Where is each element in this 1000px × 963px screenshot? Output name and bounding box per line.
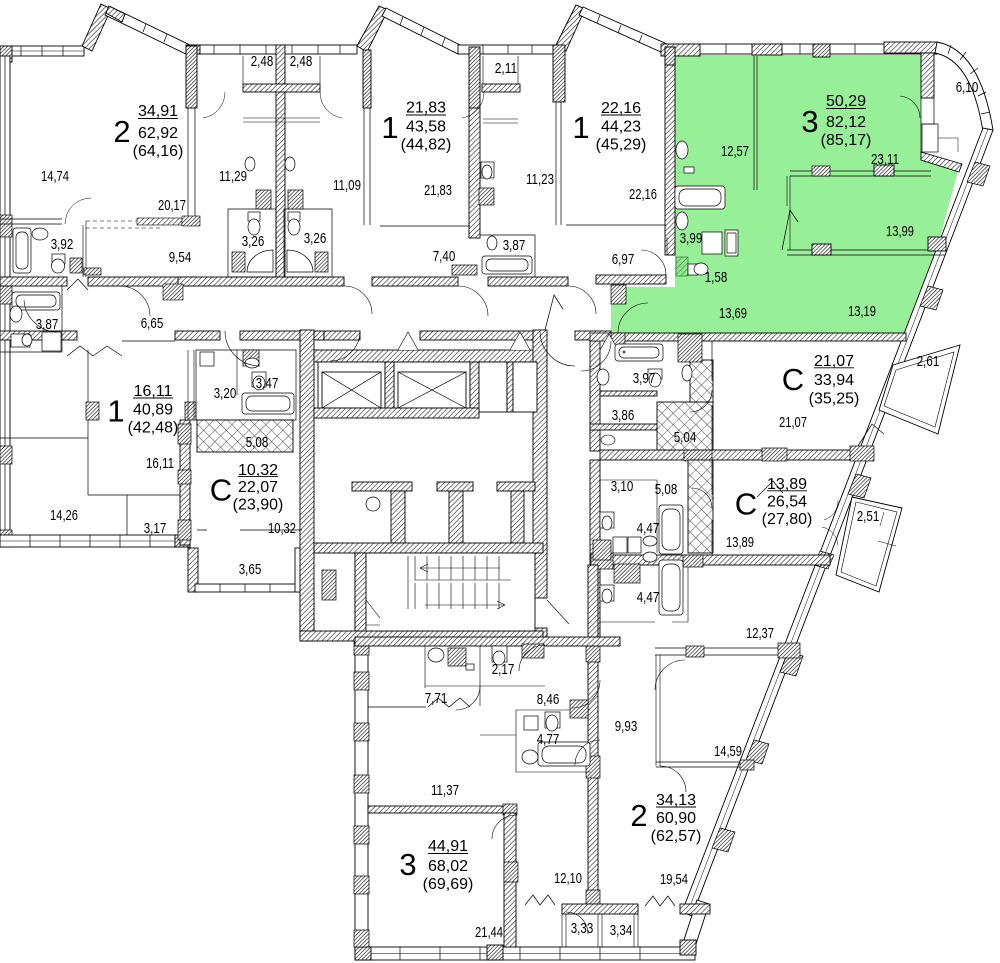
svg-text:1: 1 xyxy=(572,110,589,145)
svg-text:6,97: 6,97 xyxy=(612,251,635,268)
svg-text:62,92: 62,92 xyxy=(138,125,178,142)
svg-text:3,10: 3,10 xyxy=(611,478,634,495)
svg-text:5,04: 5,04 xyxy=(674,429,697,446)
svg-text:4,47: 4,47 xyxy=(637,589,660,606)
svg-text:3,17: 3,17 xyxy=(144,520,167,537)
svg-text:(62,57): (62,57) xyxy=(651,828,702,845)
svg-text:11,29: 11,29 xyxy=(219,168,247,185)
svg-text:1: 1 xyxy=(107,394,124,429)
svg-text:10,32: 10,32 xyxy=(268,520,296,537)
svg-text:2,51: 2,51 xyxy=(857,508,880,525)
svg-text:6,65: 6,65 xyxy=(141,315,164,332)
svg-text:C: C xyxy=(210,473,232,508)
svg-text:50,29: 50,29 xyxy=(826,93,866,110)
svg-text:5,08: 5,08 xyxy=(655,481,678,498)
svg-text:(69,69): (69,69) xyxy=(423,876,474,893)
svg-text:14,59: 14,59 xyxy=(714,743,742,760)
svg-text:26,54: 26,54 xyxy=(767,494,807,511)
svg-text:C: C xyxy=(782,362,804,397)
svg-text:40,89: 40,89 xyxy=(133,402,173,419)
svg-text:7,40: 7,40 xyxy=(433,248,456,265)
svg-text:4,47: 4,47 xyxy=(637,520,660,537)
svg-text:33,94: 33,94 xyxy=(814,372,854,389)
svg-text:13,99: 13,99 xyxy=(886,223,914,240)
svg-text:(27,80): (27,80) xyxy=(762,511,813,528)
svg-text:2: 2 xyxy=(630,798,647,833)
svg-text:13,69: 13,69 xyxy=(719,305,747,322)
svg-text:2,17: 2,17 xyxy=(492,661,515,678)
svg-text:20,17: 20,17 xyxy=(158,197,186,214)
svg-text:22,07: 22,07 xyxy=(238,479,278,496)
svg-text:21,07: 21,07 xyxy=(779,414,807,431)
svg-text:21,44: 21,44 xyxy=(475,924,503,941)
svg-text:13,19: 13,19 xyxy=(848,303,876,320)
svg-text:3: 3 xyxy=(399,847,416,882)
svg-text:3,65: 3,65 xyxy=(239,561,262,578)
svg-text:16,11: 16,11 xyxy=(146,455,174,472)
svg-text:9,54: 9,54 xyxy=(169,249,192,266)
svg-text:(64,16): (64,16) xyxy=(133,143,184,160)
svg-text:3,92: 3,92 xyxy=(51,236,74,253)
svg-text:5,08: 5,08 xyxy=(246,434,269,451)
svg-text:2,11: 2,11 xyxy=(495,60,518,77)
svg-text:16,11: 16,11 xyxy=(134,383,173,400)
svg-text:14,26: 14,26 xyxy=(50,507,78,524)
svg-text:82,12: 82,12 xyxy=(826,114,866,131)
svg-text:1,58: 1,58 xyxy=(705,269,728,286)
svg-text:21,83: 21,83 xyxy=(406,100,446,117)
svg-text:3,26: 3,26 xyxy=(242,233,265,250)
svg-text:23,11: 23,11 xyxy=(871,151,899,168)
svg-text:44,23: 44,23 xyxy=(601,119,641,136)
svg-text:(44,82): (44,82) xyxy=(401,137,452,154)
svg-text:3,86: 3,86 xyxy=(612,407,635,424)
svg-text:(42,48): (42,48) xyxy=(128,420,179,437)
svg-text:3,87: 3,87 xyxy=(36,316,59,333)
svg-text:68,02: 68,02 xyxy=(428,858,468,875)
svg-text:3,97: 3,97 xyxy=(633,370,656,387)
svg-text:7,71: 7,71 xyxy=(425,690,448,707)
svg-text:14,74: 14,74 xyxy=(41,168,69,185)
svg-text:11,37: 11,37 xyxy=(431,782,459,799)
svg-text:22,16: 22,16 xyxy=(629,186,657,203)
svg-text:3: 3 xyxy=(801,104,818,139)
svg-text:12,57: 12,57 xyxy=(721,143,749,160)
svg-text:3,34: 3,34 xyxy=(610,922,633,939)
svg-text:4,77: 4,77 xyxy=(537,731,560,748)
svg-text:43,58: 43,58 xyxy=(406,119,446,136)
svg-text:9,93: 9,93 xyxy=(615,718,638,735)
svg-text:(35,25): (35,25) xyxy=(809,391,860,408)
svg-text:34,91: 34,91 xyxy=(138,103,178,120)
svg-text:3,47: 3,47 xyxy=(256,375,279,392)
svg-text:8,46: 8,46 xyxy=(537,691,560,708)
svg-text:(45,29): (45,29) xyxy=(596,137,647,154)
svg-text:12,10: 12,10 xyxy=(554,870,582,887)
svg-text:2,48: 2,48 xyxy=(290,53,313,70)
svg-text:1: 1 xyxy=(381,110,398,145)
svg-text:22,16: 22,16 xyxy=(601,100,641,117)
svg-text:19,54: 19,54 xyxy=(660,871,688,888)
svg-text:11,09: 11,09 xyxy=(333,177,361,194)
svg-text:34,13: 34,13 xyxy=(656,792,696,809)
svg-text:2: 2 xyxy=(113,114,130,149)
svg-text:3,87: 3,87 xyxy=(503,237,526,254)
svg-text:21,83: 21,83 xyxy=(424,182,452,199)
svg-text:(85,17): (85,17) xyxy=(821,132,872,149)
svg-text:C: C xyxy=(735,487,757,522)
svg-text:13,89: 13,89 xyxy=(726,534,754,551)
svg-text:2,48: 2,48 xyxy=(251,53,274,70)
svg-text:(23,90): (23,90) xyxy=(233,497,284,514)
svg-text:3,99: 3,99 xyxy=(680,230,703,247)
svg-text:3,20: 3,20 xyxy=(214,385,237,402)
svg-text:12,37: 12,37 xyxy=(746,625,774,642)
svg-text:3,33: 3,33 xyxy=(571,920,594,937)
svg-text:60,90: 60,90 xyxy=(656,810,696,827)
svg-text:3,26: 3,26 xyxy=(304,230,327,247)
svg-text:11,23: 11,23 xyxy=(526,171,554,188)
svg-text:6,10: 6,10 xyxy=(956,79,979,96)
svg-text:2,61: 2,61 xyxy=(917,353,940,370)
svg-text:44,91: 44,91 xyxy=(428,838,468,855)
